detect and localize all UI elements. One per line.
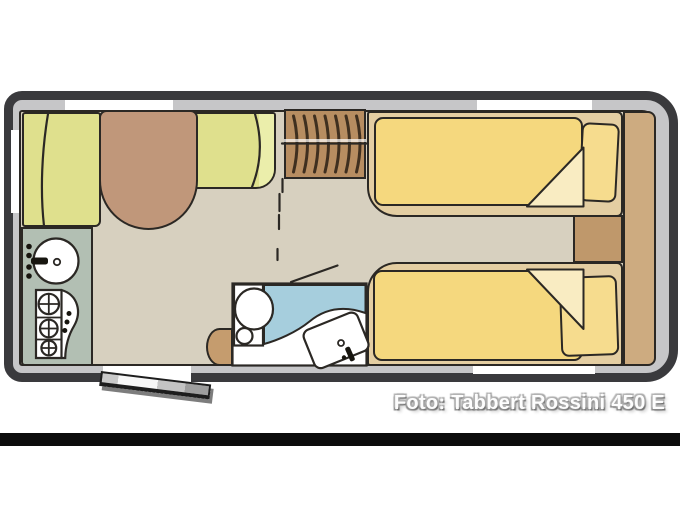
wardrobe-tambour [284,109,366,179]
bed-bottom-blanket [373,270,583,361]
kitchen-counter [21,227,93,366]
bed-top-blanket [374,117,583,206]
dinette-table [99,110,198,230]
photo-credit: Foto: Tabbert Rossini 450 E [394,392,665,415]
window-rear [473,366,595,374]
dinette-seat-right [187,112,276,189]
window-front-left [65,100,173,110]
bedside-shelf-strip [623,111,656,366]
dinette-seat-left [22,112,101,227]
dinette-seat-backrest [259,114,274,187]
bed-bottom-pillow [559,275,620,357]
chest-between-beds [573,215,623,263]
bed-top-pillow [578,122,620,203]
window-front-right [477,100,592,110]
bathroom-corner-seat [206,328,233,366]
letterbox-bar [0,433,680,446]
floorplan-image: Foto: Tabbert Rossini 450 E [0,0,680,510]
